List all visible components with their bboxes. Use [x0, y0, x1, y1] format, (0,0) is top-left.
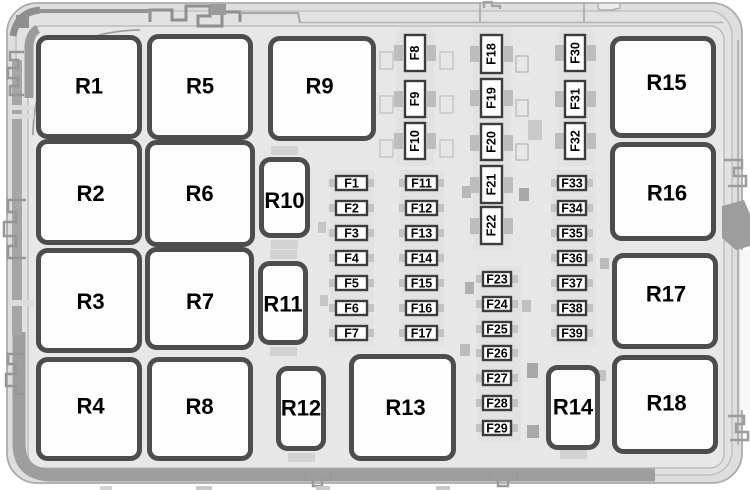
svg-text:F27: F27 — [486, 372, 508, 386]
svg-text:F2: F2 — [344, 202, 359, 216]
svg-text:F35: F35 — [561, 227, 583, 241]
svg-text:F17: F17 — [411, 327, 433, 341]
svg-text:F12: F12 — [411, 202, 433, 216]
svg-text:R1: R1 — [75, 74, 103, 99]
svg-text:F29: F29 — [486, 422, 508, 436]
svg-text:R18: R18 — [646, 391, 686, 416]
svg-text:F37: F37 — [561, 277, 583, 291]
svg-text:F13: F13 — [411, 227, 433, 241]
svg-text:F14: F14 — [411, 252, 433, 266]
svg-text:F36: F36 — [561, 252, 583, 266]
svg-text:F22: F22 — [485, 215, 499, 237]
svg-text:R12: R12 — [281, 396, 321, 421]
svg-text:F7: F7 — [344, 327, 359, 341]
svg-text:F11: F11 — [411, 177, 432, 191]
svg-text:F21: F21 — [485, 174, 499, 196]
svg-text:R17: R17 — [646, 282, 686, 307]
svg-text:F34: F34 — [561, 202, 583, 216]
svg-text:F33: F33 — [561, 177, 583, 191]
svg-text:F16: F16 — [411, 302, 433, 316]
svg-text:R7: R7 — [186, 289, 214, 314]
svg-text:F10: F10 — [408, 130, 422, 152]
svg-text:F39: F39 — [561, 327, 583, 341]
svg-text:F15: F15 — [411, 277, 433, 291]
svg-text:F25: F25 — [486, 323, 508, 337]
svg-text:F31: F31 — [569, 88, 583, 110]
svg-text:R8: R8 — [185, 394, 213, 419]
svg-text:R6: R6 — [185, 181, 213, 206]
svg-text:R16: R16 — [647, 181, 687, 206]
svg-text:F18: F18 — [485, 43, 499, 65]
svg-text:F20: F20 — [485, 131, 499, 153]
svg-text:R11: R11 — [263, 292, 302, 317]
svg-text:R5: R5 — [186, 74, 214, 99]
svg-text:R10: R10 — [264, 188, 304, 213]
svg-text:R2: R2 — [76, 181, 104, 206]
svg-text:R3: R3 — [76, 289, 104, 314]
svg-text:F28: F28 — [486, 397, 508, 411]
svg-text:F8: F8 — [408, 46, 422, 61]
svg-text:F5: F5 — [344, 277, 359, 291]
svg-text:F32: F32 — [569, 130, 583, 152]
svg-text:F19: F19 — [485, 87, 499, 109]
svg-text:F38: F38 — [561, 302, 583, 316]
svg-text:R9: R9 — [305, 74, 333, 99]
svg-text:F1: F1 — [344, 177, 359, 191]
svg-text:F24: F24 — [486, 298, 508, 312]
svg-text:F4: F4 — [344, 252, 359, 266]
svg-text:F23: F23 — [486, 273, 508, 287]
svg-text:R15: R15 — [646, 70, 686, 95]
svg-text:R4: R4 — [76, 394, 105, 419]
svg-text:R14: R14 — [553, 395, 594, 420]
svg-text:F26: F26 — [486, 347, 508, 361]
svg-text:F9: F9 — [408, 92, 422, 107]
svg-text:F6: F6 — [344, 302, 359, 316]
svg-text:F3: F3 — [344, 227, 359, 241]
svg-text:F30: F30 — [569, 42, 583, 64]
svg-text:R13: R13 — [385, 395, 425, 420]
